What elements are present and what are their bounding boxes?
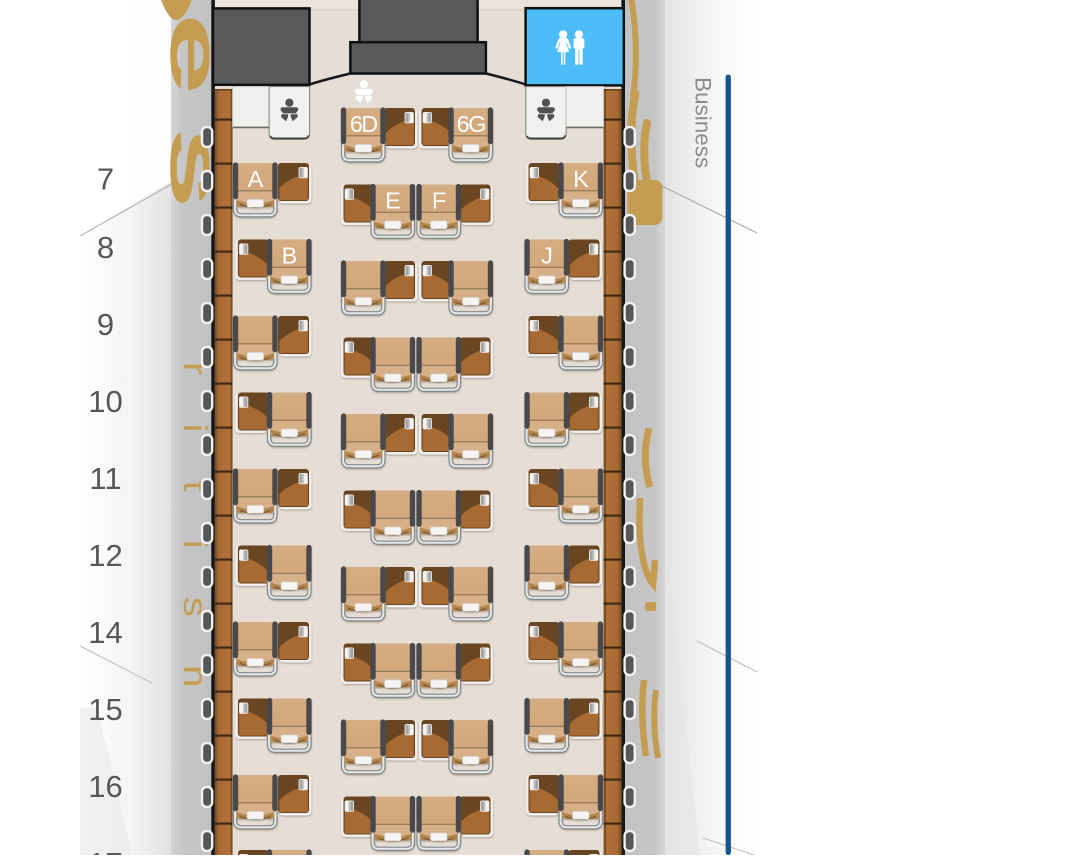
svg-text:15: 15	[88, 692, 122, 727]
svg-text:14: 14	[88, 615, 122, 650]
svg-text:8: 8	[97, 230, 114, 265]
svg-text:7: 7	[97, 162, 114, 197]
svg-text:6D: 6D	[350, 111, 377, 137]
svg-text:ritish: ritish	[177, 362, 215, 735]
svg-text:17: 17	[88, 846, 122, 855]
svg-text:B: B	[282, 242, 297, 268]
svg-text:16: 16	[88, 769, 122, 804]
svg-text:J: J	[541, 242, 552, 268]
svg-text:11: 11	[89, 461, 121, 496]
svg-text:K: K	[573, 166, 589, 192]
svg-text:Business: Business	[691, 77, 716, 168]
svg-text:E: E	[385, 187, 400, 213]
svg-text:9: 9	[97, 307, 114, 342]
svg-text:A: A	[248, 166, 264, 192]
svg-text:6G: 6G	[457, 111, 485, 137]
svg-text:10: 10	[88, 384, 122, 419]
svg-text:12: 12	[88, 538, 122, 573]
svg-text:F: F	[432, 187, 446, 213]
